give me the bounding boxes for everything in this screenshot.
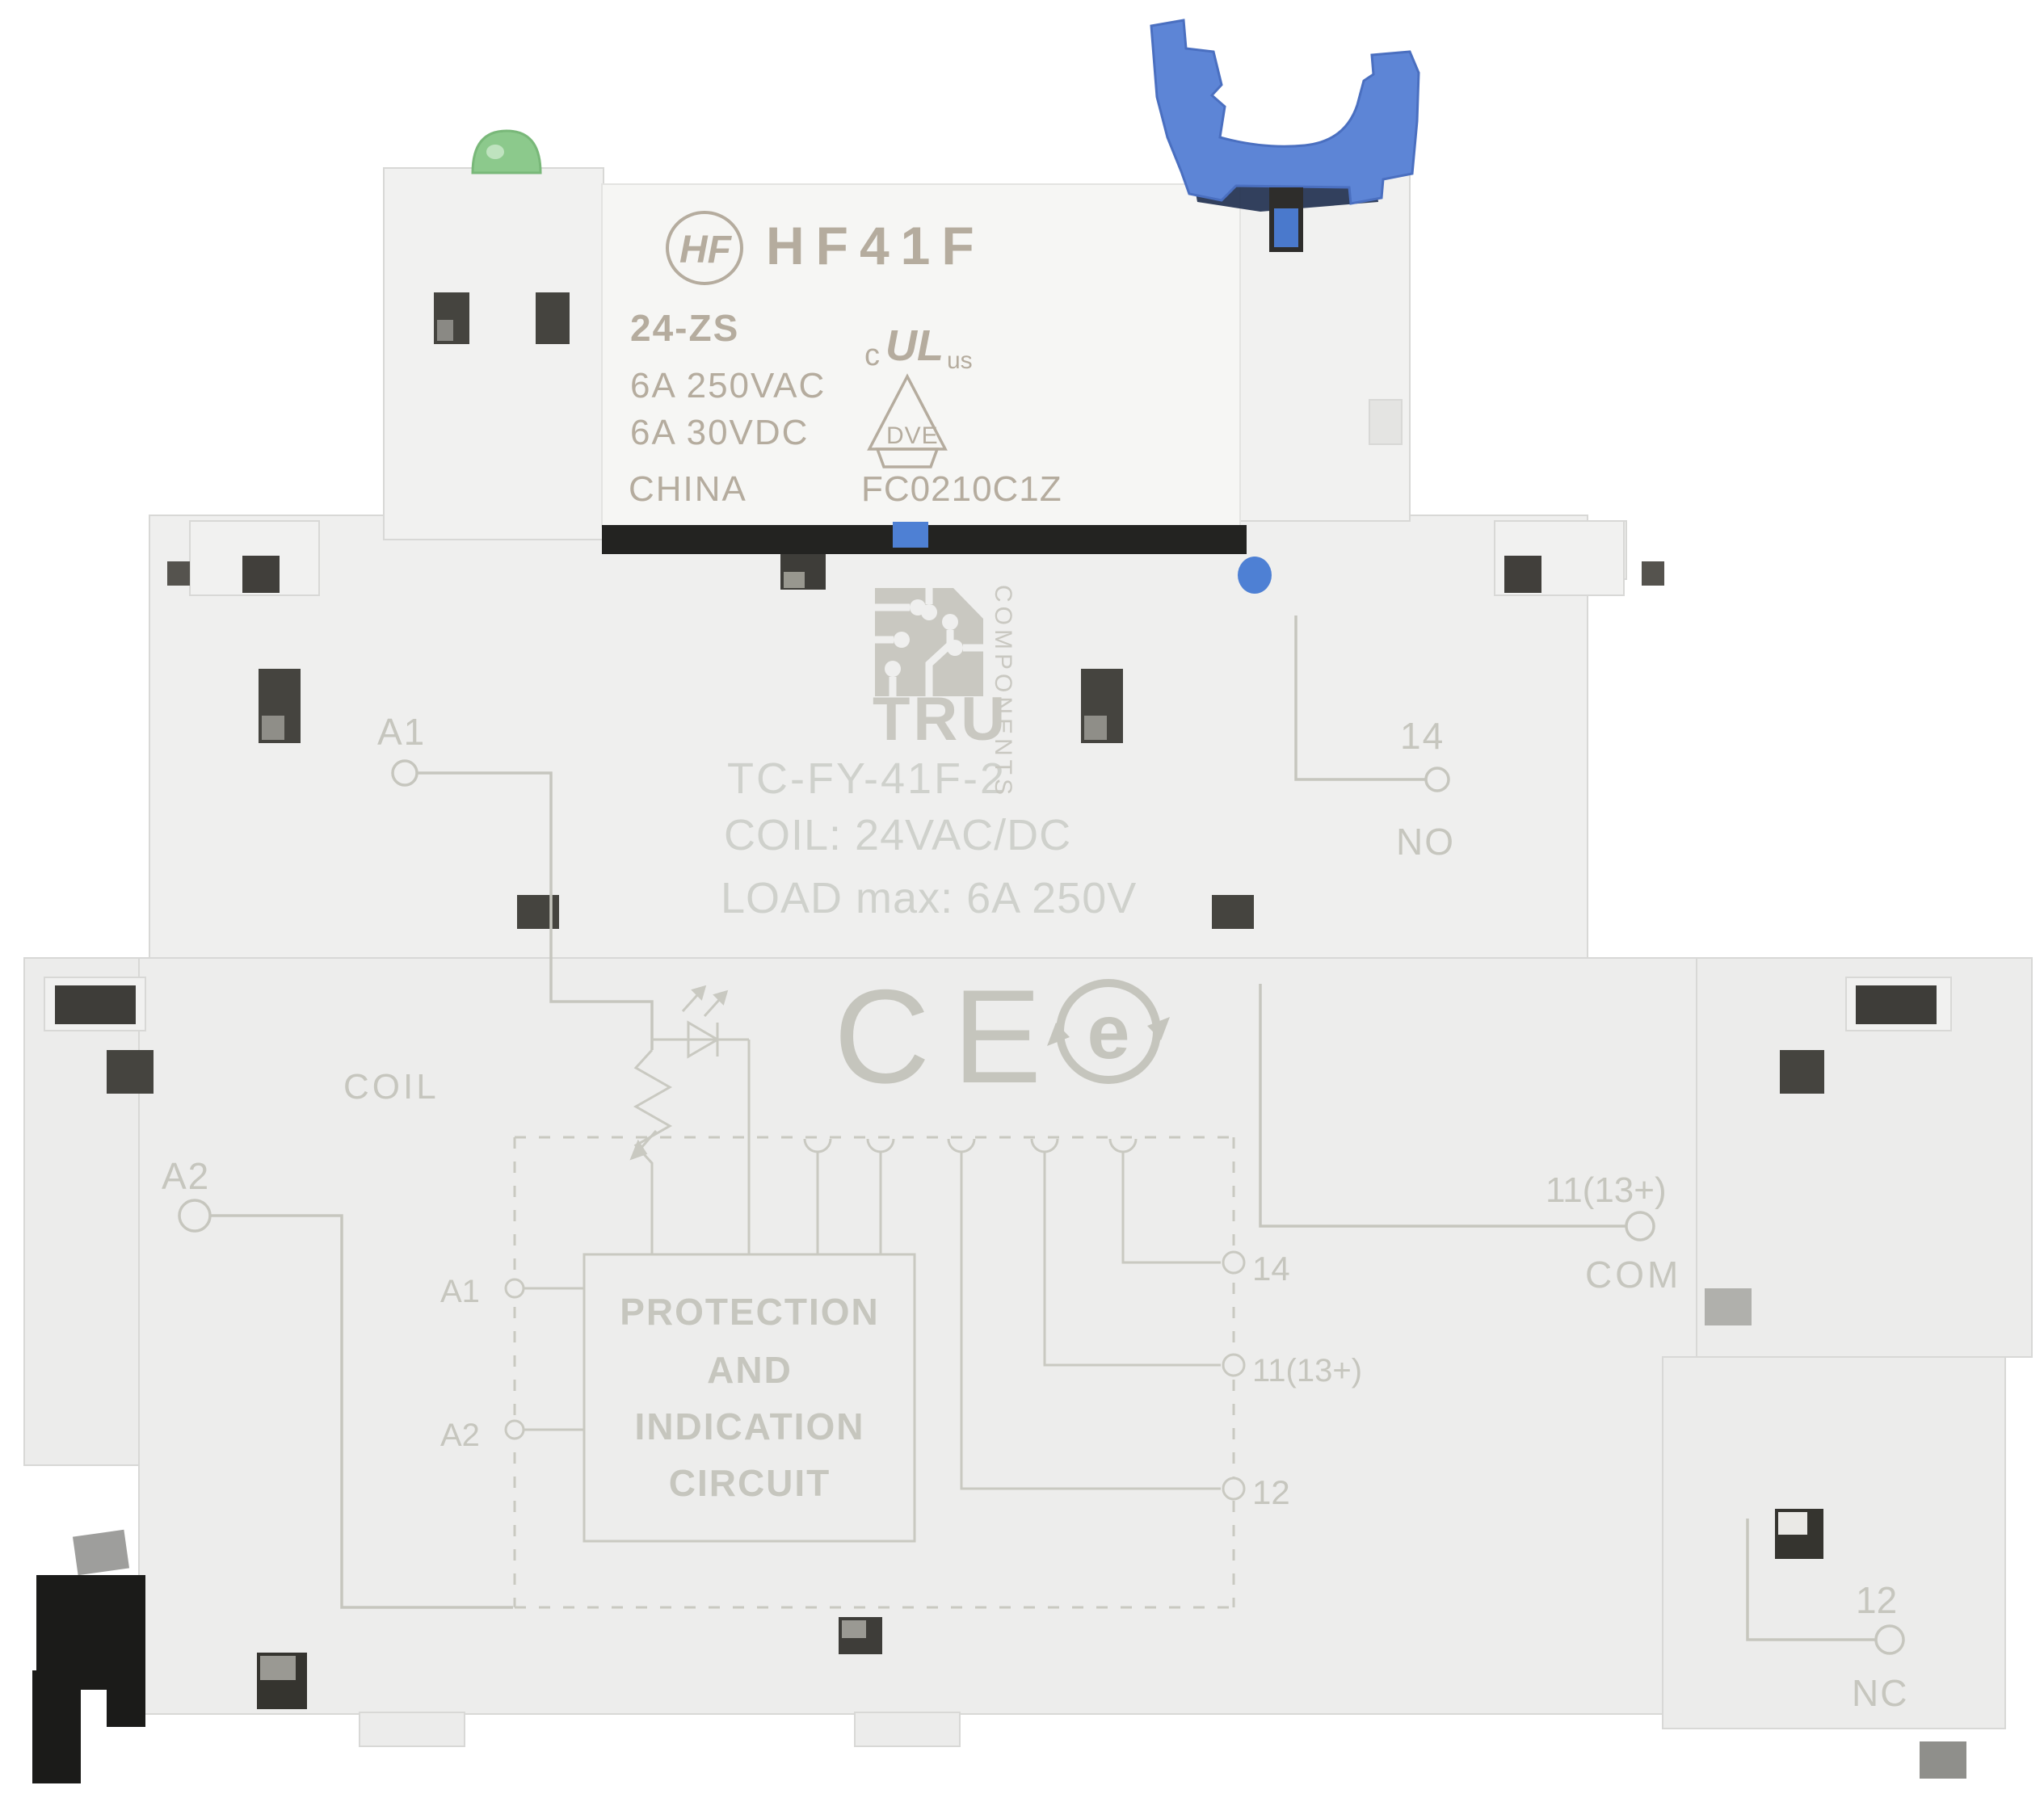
ce-mark-text: CE	[834, 962, 1064, 1111]
relay-module-graphic: HF HF41F 24-ZS 6A 250VAC 6A 30VDC CHINA …	[0, 0, 2044, 1798]
clip-window-blue	[1274, 208, 1298, 247]
terminal-nc-label: NC	[1852, 1672, 1908, 1714]
relay-origin-text: CHINA	[629, 469, 747, 509]
blue-indicator-dot	[1238, 557, 1272, 594]
din-clip-spring	[73, 1530, 129, 1575]
terminal-11-label: 11(13+)	[1546, 1170, 1667, 1210]
terminal-no-label: NO	[1396, 821, 1455, 863]
tru-brand-text: TRU	[873, 685, 1008, 754]
terminal-a1-label: A1	[377, 711, 426, 753]
rohs-mark-letter: e	[1087, 989, 1130, 1075]
terminal-a2-label: A2	[162, 1155, 210, 1197]
protection-box-line1: PROTECTION	[620, 1291, 880, 1333]
relay-rating-dc-text: 6A 30VDC	[630, 413, 809, 452]
relay-rating-ac-text: 6A 250VAC	[630, 366, 826, 405]
ul-mark-us: us	[947, 347, 973, 374]
ul-mark-ul: UL	[885, 321, 944, 370]
din-clip-latch[interactable]	[32, 1575, 145, 1783]
protection-box-line4: CIRCUIT	[669, 1462, 831, 1504]
terminal-com-label: COM	[1585, 1254, 1681, 1296]
protection-box-line2: AND	[707, 1349, 793, 1391]
relay-type-code-text: 24-ZS	[630, 307, 739, 349]
socket-load-spec-text: LOAD max: 6A 250V	[721, 874, 1137, 922]
terminal-12-label: 12	[1856, 1579, 1897, 1621]
diagram-pin-a2: A2	[440, 1418, 480, 1453]
diagram-pin-14: 14	[1252, 1250, 1290, 1288]
socket-coil-spec-text: COIL: 24VAC/DC	[724, 811, 1071, 859]
vde-mark-text: DVE	[886, 422, 939, 449]
relay: HF HF41F 24-ZS 6A 250VAC 6A 30VDC CHINA …	[602, 184, 1247, 554]
relay-module-photo: HF HF41F 24-ZS 6A 250VAC 6A 30VDC CHINA …	[0, 0, 2044, 1798]
diagram-pin-a1: A1	[440, 1274, 480, 1309]
diagram-pin-11: 11(13+)	[1252, 1353, 1362, 1388]
terminal-14-label: 14	[1400, 715, 1445, 757]
ul-mark-c: c	[864, 338, 880, 372]
retaining-clip-lever[interactable]	[1151, 20, 1419, 204]
hf-logo-text: HF	[679, 229, 733, 271]
protection-box-line3: INDICATION	[635, 1405, 865, 1447]
relay-model-text: HF41F	[766, 216, 986, 275]
coil-section-label: COIL	[343, 1067, 440, 1107]
din-rail-clip	[32, 1530, 145, 1783]
socket-model-text: TC-FY-41F-2	[727, 754, 1007, 803]
led-indicator	[473, 131, 540, 173]
relay-base-blue-mark	[893, 522, 928, 548]
relay-cert-code-text: FC0210C1Z	[861, 469, 1062, 509]
components-brand-text: COMPONENTS	[990, 585, 1016, 799]
diagram-pin-12: 12	[1252, 1473, 1290, 1511]
